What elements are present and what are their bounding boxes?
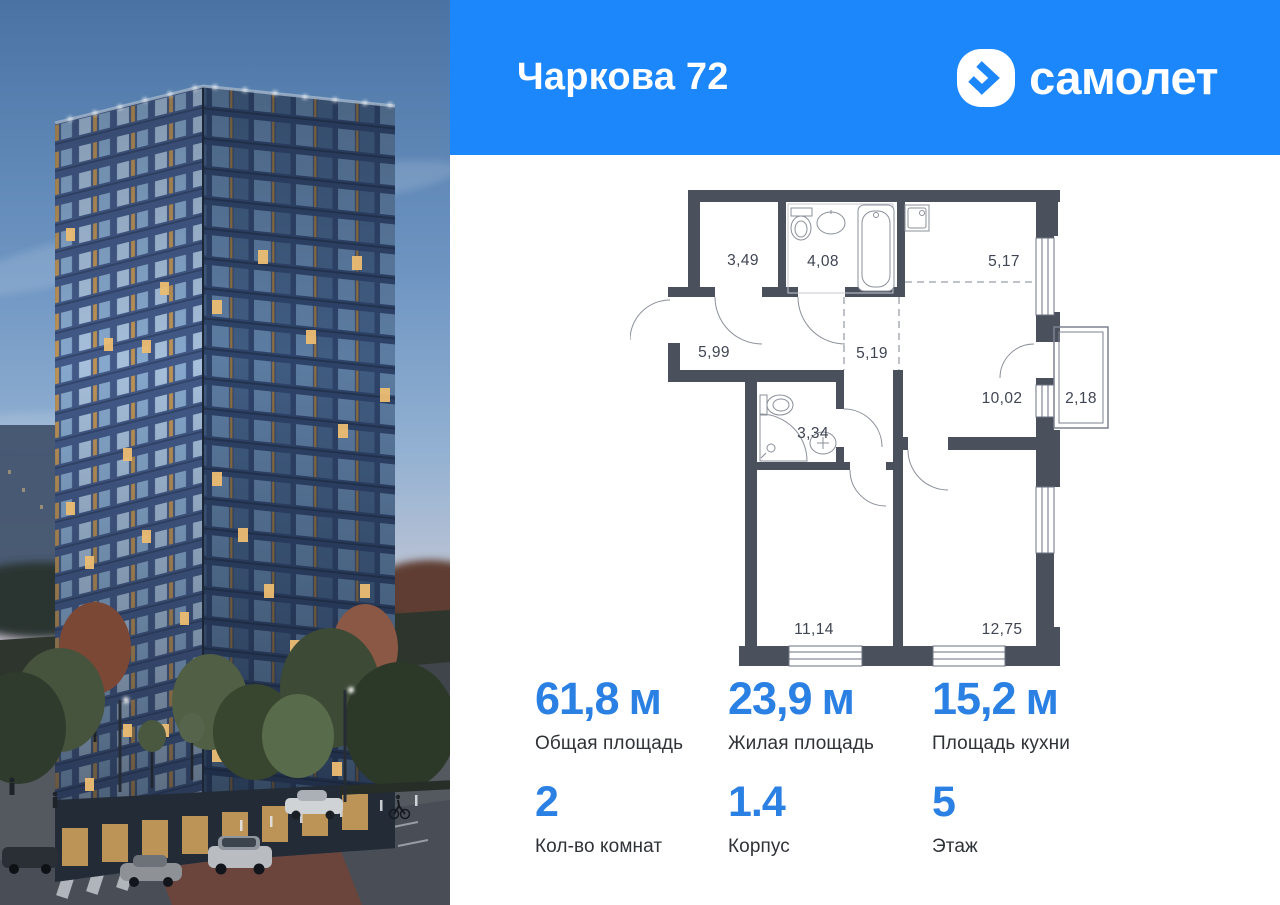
room-area-bathroom: 4,08 <box>807 253 839 270</box>
brand-logo-text: самолет <box>1029 54 1218 101</box>
stat-rooms: 2 Кол-во комнат <box>535 781 728 858</box>
stats-grid: 61,8м Общая площадь 23,9м Жилая площадь … <box>535 676 1250 858</box>
room-area-living: 10,02 <box>982 390 1023 407</box>
room-area-wc: 3,34 <box>797 425 829 442</box>
room-area-balcony: 2,18 <box>1065 390 1097 407</box>
room-area-corridor: 5,19 <box>856 345 888 362</box>
stat-total-area-label: Общая площадь <box>535 733 728 755</box>
stat-building-value: 1.4 <box>728 781 932 825</box>
brand-logo: самолет <box>956 48 1218 108</box>
room-area-closet: 3,49 <box>727 252 759 269</box>
room-area-bedroom1: 11,14 <box>794 621 834 638</box>
building-photo-art <box>0 0 450 905</box>
floorplan: 3,49 4,08 5,17 5,99 5,19 10,02 2,18 3,34… <box>630 185 1110 685</box>
floorplan-drawing: 3,49 4,08 5,17 5,99 5,19 10,02 2,18 3,34… <box>630 185 1110 685</box>
details-panel: Чаркова 72 самолет <box>450 0 1280 905</box>
stat-living-area-value: 23,9м <box>728 676 932 722</box>
stat-total-area: 61,8м Общая площадь <box>535 676 728 755</box>
stat-kitchen-area: 15,2м Площадь кухни <box>932 676 1250 755</box>
balcony-outline <box>1054 327 1108 428</box>
samolet-logo-icon <box>956 48 1016 108</box>
stat-floor-value: 5 <box>932 781 1250 825</box>
stat-kitchen-area-value: 15,2м <box>932 676 1250 722</box>
stat-building: 1.4 Корпус <box>728 781 932 858</box>
stat-rooms-label: Кол-во комнат <box>535 836 728 858</box>
stat-rooms-value: 2 <box>535 781 728 825</box>
stat-floor-label: Этаж <box>932 836 1250 858</box>
building-photo <box>0 0 450 905</box>
stat-living-area-label: Жилая площадь <box>728 733 932 755</box>
listing-card: Чаркова 72 самолет <box>0 0 1280 905</box>
room-area-bedroom2: 12,75 <box>982 621 1023 638</box>
stat-living-area: 23,9м Жилая площадь <box>728 676 932 755</box>
door-arcs <box>630 297 1034 506</box>
header: Чаркова 72 самолет <box>450 0 1280 155</box>
stat-building-label: Корпус <box>728 836 932 858</box>
page-title: Чаркова 72 <box>517 56 729 99</box>
stat-kitchen-area-label: Площадь кухни <box>932 733 1250 755</box>
room-area-kitchen: 5,17 <box>988 253 1020 270</box>
stat-floor: 5 Этаж <box>932 781 1250 858</box>
room-area-hallway: 5,99 <box>698 344 730 361</box>
stat-total-area-value: 61,8м <box>535 676 728 722</box>
